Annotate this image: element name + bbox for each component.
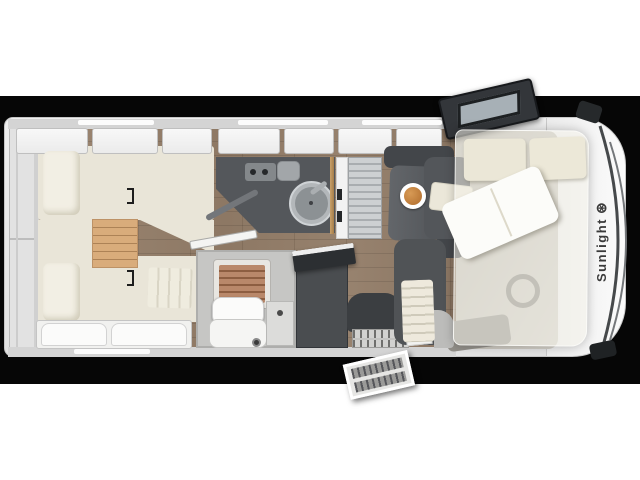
sunlight-logo-icon: ⊛ <box>593 201 609 214</box>
wardrobe <box>296 258 348 348</box>
round-sink <box>289 181 334 226</box>
fridge-handle-icon <box>337 189 342 200</box>
entry-seat <box>347 293 401 332</box>
duvet <box>440 164 561 261</box>
rear-storage-compartment <box>9 123 35 353</box>
window-top-2 <box>238 120 328 125</box>
pillow <box>43 263 80 321</box>
brand-text: Sunlight <box>594 218 609 282</box>
bench-cushion <box>41 323 107 346</box>
kitchen-tray <box>277 161 300 181</box>
floorplan-canvas: Sunlight⊛ <box>0 0 640 480</box>
brass-rail <box>330 157 334 234</box>
cab-door-window <box>458 90 521 129</box>
bedroom-step <box>92 219 138 268</box>
plate-of-food <box>400 183 426 209</box>
wheel-arch <box>434 310 454 348</box>
window-latch-icon <box>127 188 134 204</box>
bench-cushion <box>111 323 187 346</box>
window-bottom-1 <box>74 349 150 354</box>
vanity-sink <box>266 301 294 346</box>
overhead-cabinet <box>162 128 212 154</box>
overhead-cabinet <box>92 128 158 154</box>
shower-drain-icon <box>252 338 261 347</box>
pillow <box>43 151 80 215</box>
window-top-3 <box>362 120 442 125</box>
fridge-vent-panel <box>348 157 382 239</box>
sunlight-wordmark: Sunlight⊛ <box>593 201 610 282</box>
drop-down-bed-overlay <box>453 129 589 346</box>
folded-blanket <box>147 267 192 309</box>
window-latch-icon <box>127 270 134 286</box>
croissants <box>404 187 422 205</box>
stove-burners <box>245 163 276 181</box>
window-top-1 <box>78 120 154 125</box>
bathroom <box>196 250 296 348</box>
overhead-cabinet <box>218 128 280 154</box>
seat-cushion <box>401 279 435 342</box>
fridge-handle-icon <box>337 211 342 222</box>
overhead-cabinet <box>284 128 334 154</box>
